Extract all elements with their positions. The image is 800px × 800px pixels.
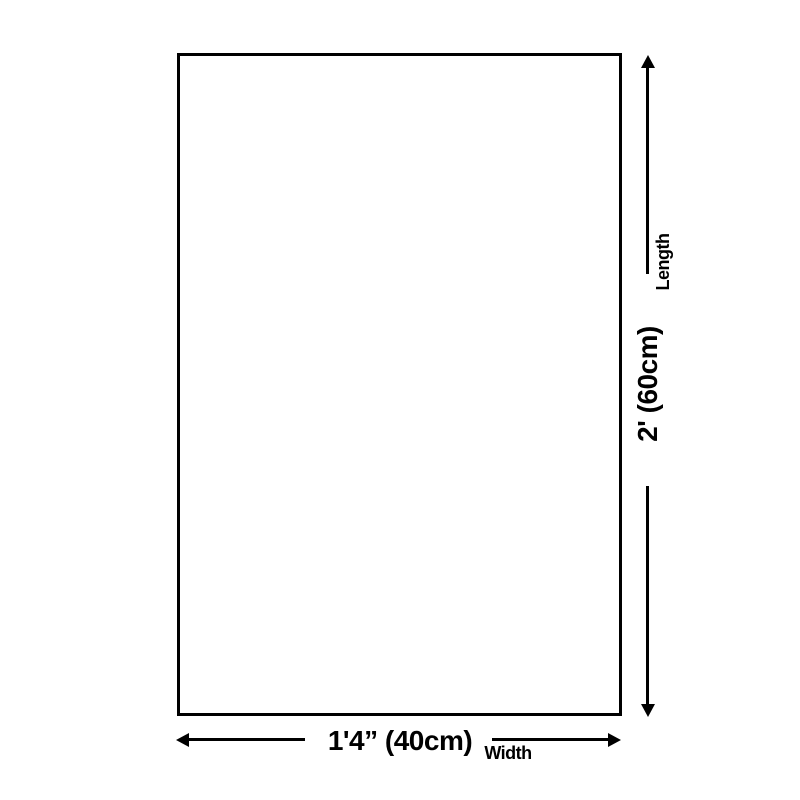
arrow-down-icon	[641, 704, 655, 717]
width-label: Width	[484, 744, 531, 762]
length-arrow-lower-line	[646, 486, 649, 706]
arrow-right-icon	[608, 733, 621, 747]
width-value: 1'4” (40cm)	[328, 727, 472, 755]
length-label: Length	[654, 234, 672, 291]
dimension-diagram: Length 2' (60cm) 1'4” (40cm) Width	[0, 0, 800, 800]
length-value: 2' (60cm)	[634, 326, 662, 442]
arrow-left-icon	[176, 733, 189, 747]
length-arrow-upper-line	[646, 66, 649, 274]
width-arrow-right-line	[492, 738, 609, 741]
product-outline-rectangle	[177, 53, 622, 716]
width-arrow-left-line	[189, 738, 305, 741]
